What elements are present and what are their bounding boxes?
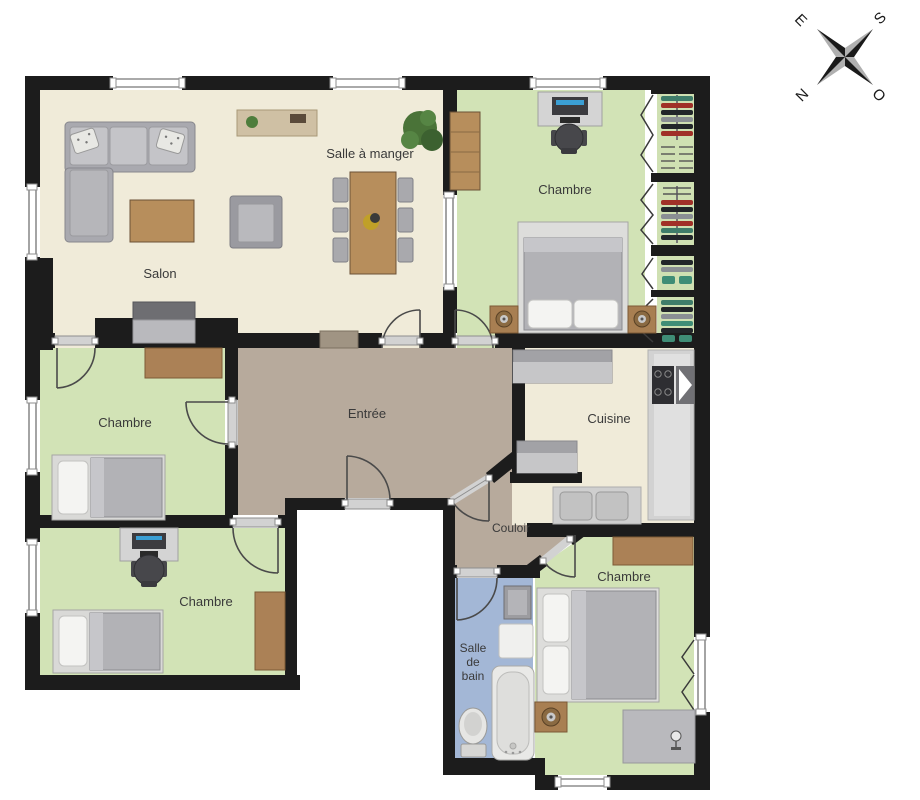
label-chambre-bottom-right: Chambre <box>597 569 650 584</box>
desk <box>538 92 602 126</box>
kitchen-table <box>513 350 612 383</box>
pillow <box>543 594 569 642</box>
pillow <box>528 300 572 328</box>
computer-monitor <box>132 533 166 549</box>
bathtub <box>492 666 534 760</box>
wardrobe <box>145 348 222 378</box>
compass-south: S <box>871 9 890 28</box>
label-couloir: Couloir <box>492 521 530 535</box>
window-top-salon <box>110 76 185 90</box>
pillow <box>543 646 569 694</box>
fridge <box>676 366 694 404</box>
label-entree: Entrée <box>348 406 386 421</box>
pillow <box>58 461 88 514</box>
bathroom-cabinet <box>504 586 531 619</box>
washbasin <box>499 624 533 658</box>
label-salon: Salon <box>143 266 176 281</box>
console <box>320 331 358 348</box>
closet-clothes <box>661 95 693 342</box>
desk-lamp <box>671 731 681 741</box>
double-bed <box>518 222 628 333</box>
nightstand <box>535 702 567 732</box>
label-salle-de-bain-3: bain <box>462 669 485 683</box>
compass-east: E <box>791 11 810 30</box>
sideboard <box>237 110 317 136</box>
compass-west: O <box>869 85 889 105</box>
wardrobe <box>255 592 285 670</box>
sliding-door-dining-bedroom <box>443 192 457 290</box>
void-area <box>297 510 443 688</box>
single-bed <box>52 455 165 520</box>
cooktop <box>652 366 674 404</box>
armchair <box>230 196 282 248</box>
kitchen-table-2 <box>517 441 577 473</box>
compass-north: N <box>793 86 813 106</box>
floor-plan-page: Salle à manger Salon Chambre Chambre Ent… <box>0 0 920 800</box>
small-plant <box>246 116 258 128</box>
window-left-bedroom-mid <box>25 397 40 475</box>
bookshelf <box>450 112 480 190</box>
computer-monitor <box>552 97 588 115</box>
window-top-dining <box>330 76 405 90</box>
compass-rose: E S N O <box>791 9 890 106</box>
window-left-salon <box>25 184 40 260</box>
double-bed <box>537 588 659 702</box>
label-cuisine: Cuisine <box>587 411 630 426</box>
window-left-bedroom-bottom <box>25 539 40 616</box>
desk-gray <box>623 710 695 763</box>
nightstand <box>490 306 518 333</box>
coffee-table <box>130 200 194 242</box>
window-bottom-bedroom-right <box>555 775 610 790</box>
label-chambre-top-right: Chambre <box>538 182 591 197</box>
dining-table-set <box>333 172 413 274</box>
label-salle-de-bain-1: Salle <box>460 641 487 655</box>
tv-sideboard <box>133 302 195 343</box>
single-bed <box>53 610 163 673</box>
label-chambre-bottom-left: Chambre <box>179 594 232 609</box>
floor-plan: Salle à manger Salon Chambre Chambre Ent… <box>0 0 920 800</box>
window-top-bedroom <box>530 76 606 90</box>
pillow <box>574 300 618 328</box>
label-salle-a-manger: Salle à manger <box>326 146 414 161</box>
nightstand <box>628 306 656 333</box>
kitchen-sink <box>553 487 641 524</box>
toilet <box>459 708 487 757</box>
desk-wood <box>613 537 693 565</box>
label-salle-de-bain-2: de <box>466 655 480 669</box>
label-chambre-mid-left: Chambre <box>98 415 151 430</box>
floor-entree <box>238 348 512 498</box>
pillow <box>59 616 87 666</box>
